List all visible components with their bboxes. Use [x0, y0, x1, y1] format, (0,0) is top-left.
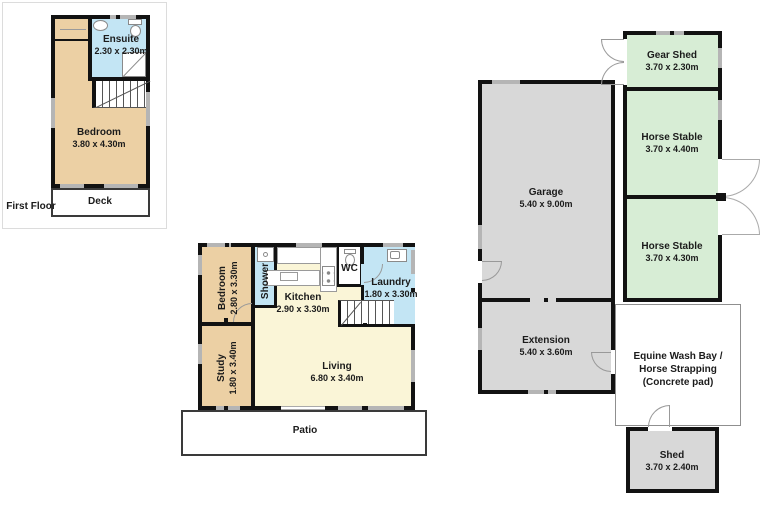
laundry-label: Laundry 1.80 x 3.30m	[353, 276, 429, 301]
closet-door-line	[60, 29, 86, 30]
gear-shed-door-arc-bottom	[601, 62, 624, 85]
window	[383, 243, 403, 247]
island-sink-icon	[280, 272, 298, 281]
dimension-tick	[626, 457, 630, 461]
stable-1-door-arc	[722, 159, 760, 197]
dimension-tick	[670, 489, 674, 493]
patio-label: Patio	[270, 424, 340, 437]
garage-label: Garage 5.40 x 9.00m	[506, 186, 586, 211]
gear-shed-label: Gear Shed 3.70 x 2.30m	[632, 49, 712, 74]
dimension-tick	[623, 246, 627, 250]
shed-door-gap	[648, 427, 672, 431]
first-floor-label: First Floor	[5, 200, 57, 213]
garage-extension-door-gap	[530, 298, 556, 302]
stable-2-door-arc	[722, 197, 760, 235]
extension-label: Extension 5.40 x 3.60m	[506, 334, 586, 359]
ff-bedroom-label: Bedroom 3.80 x 4.30m	[63, 126, 135, 151]
dimension-tick	[363, 323, 367, 327]
living-label: Living 6.80 x 3.40m	[295, 360, 379, 385]
window	[338, 406, 362, 410]
sliding-door-gap	[281, 406, 325, 410]
gear-shed-door-arc-top	[601, 39, 624, 62]
window	[146, 92, 150, 126]
window	[478, 225, 482, 249]
floor-plan-canvas: Ensuite 2.30 x 2.30m Bedroom 3.80 x 4.30…	[0, 0, 768, 512]
dimension-tick	[715, 457, 719, 461]
window	[51, 98, 55, 130]
dimension-tick	[411, 288, 415, 292]
window	[198, 255, 202, 275]
stove-icon	[322, 266, 335, 286]
window	[368, 406, 404, 410]
first-floor-stairs	[92, 81, 146, 108]
shed-label: Shed 3.70 x 2.40m	[632, 449, 712, 474]
ensuite-label: Ensuite 2.30 x 2.30m	[91, 33, 151, 58]
laundry-sink-basin-icon	[390, 251, 400, 259]
dimension-tick	[224, 406, 228, 410]
window	[198, 344, 202, 364]
horse-stable-1-label: Horse Stable 3.70 x 4.40m	[628, 131, 716, 156]
dimension-tick	[88, 44, 92, 48]
dimension-tick	[225, 243, 229, 247]
dimension-tick	[611, 190, 615, 194]
dimension-tick	[670, 87, 674, 91]
stairs-diagonal-line	[341, 302, 361, 326]
dimension-tick	[544, 80, 548, 84]
window	[296, 243, 322, 247]
dimension-tick	[146, 128, 150, 132]
dimension-tick	[623, 139, 627, 143]
wc-label: WC	[336, 262, 363, 275]
study-label: Study 1.80 x 3.40m	[215, 328, 239, 408]
dimension-tick	[670, 31, 674, 35]
window	[492, 80, 520, 84]
dimension-tick	[51, 128, 55, 132]
dimension-tick	[670, 195, 674, 199]
window	[718, 48, 722, 68]
deck-label: Deck	[70, 195, 130, 208]
kitchen-label: Kitchen 2.90 x 3.30m	[266, 291, 340, 316]
window	[478, 328, 482, 350]
ground-bedroom-label: Bedroom 2.80 x 3.30m	[216, 248, 240, 328]
sink-icon	[93, 20, 108, 31]
window	[60, 184, 84, 188]
wash-bay-label: Equine Wash Bay / Horse Strapping (Concr…	[616, 350, 740, 389]
dimension-tick	[544, 298, 548, 302]
dimension-tick	[97, 184, 101, 188]
dimension-tick	[224, 318, 228, 322]
window	[528, 390, 556, 394]
stairs-diagonal-line	[96, 81, 150, 108]
dimension-tick	[544, 390, 548, 394]
window	[411, 250, 415, 274]
stable-door-hinge-post	[716, 193, 726, 201]
first-floor-closet	[55, 19, 91, 41]
window	[104, 184, 138, 188]
window	[718, 100, 722, 120]
dimension-tick	[332, 406, 336, 410]
horse-stable-2-label: Horse Stable 3.70 x 4.30m	[628, 240, 716, 265]
dimension-tick	[670, 298, 674, 302]
dimension-tick	[116, 15, 120, 19]
window	[411, 350, 415, 382]
